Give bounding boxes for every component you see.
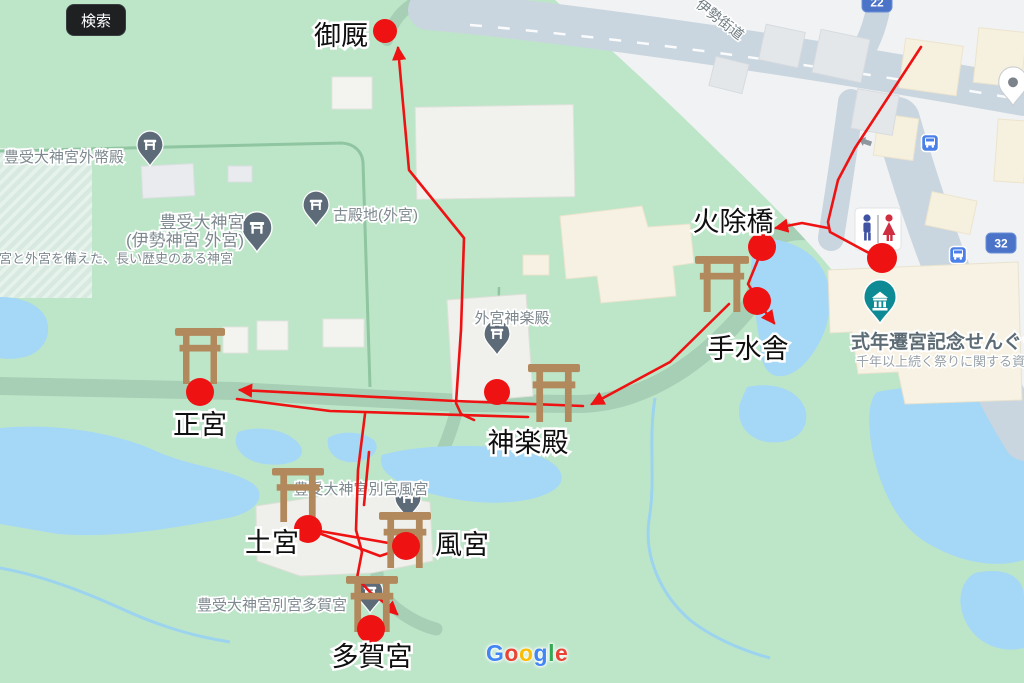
search-button-label: 検索	[81, 10, 111, 31]
poi-label: 豊受大神宮外幣殿	[4, 149, 124, 166]
google-logo-letter: o	[504, 640, 519, 666]
hatched-area	[0, 148, 92, 298]
google-logo-letter: g	[534, 640, 549, 666]
poi-label: 内宮と外宮を備えた、長い歴史のある神宮	[0, 251, 233, 266]
kazenomiya-dot	[392, 532, 420, 560]
route-shield: 22	[862, 0, 892, 12]
poi-label: (伊勢神宮 外宮)	[126, 231, 244, 250]
annotation-label: 御厩	[314, 21, 368, 51]
annotation-label: 神楽殿	[488, 428, 569, 458]
svg-text:22: 22	[870, 0, 884, 10]
svg-text:32: 32	[994, 237, 1008, 251]
map-canvas[interactable]: 豊受大神宮外幣殿豊受大神宮(伊勢神宮 外宮)内宮と外宮を備えた、長い歴史のある神…	[0, 0, 1024, 683]
museum-title-label: 式年遷宮記念せんぐう館	[851, 330, 1024, 353]
hiyokebashi-dot	[748, 233, 776, 261]
route-shield: 32	[986, 233, 1016, 253]
annotation-label: 土宮	[245, 528, 299, 558]
poi-label: 豊受大神宮	[160, 213, 245, 232]
shogu-dot	[186, 378, 214, 406]
map-svg: 豊受大神宮外幣殿豊受大神宮(伊勢神宮 外宮)内宮と外宮を備えた、長い歴史のある神…	[0, 0, 1024, 683]
google-logo-letter: e	[555, 640, 568, 666]
poi-label: 古殿地(外宮)	[333, 207, 418, 224]
bus-stop-icon[interactable]	[950, 247, 967, 264]
google-logo-letter: G	[486, 640, 504, 666]
bus-stop-icon[interactable]	[922, 135, 939, 152]
takanomiya-dot	[357, 615, 385, 643]
annotation-label: 火除橋	[693, 207, 774, 237]
rest-area-dot	[867, 243, 897, 273]
annotation-label: 手水舎	[708, 334, 789, 364]
miumaya-dot	[373, 19, 397, 43]
poi-label: 豊受大神宮別宮多賀宮	[197, 597, 347, 614]
google-logo-letter: o	[519, 640, 534, 666]
temizusha-dot	[743, 287, 771, 315]
kaguraden-dot	[484, 379, 510, 405]
museum-subtitle-label: 千年以上続く祭りに関する資	[856, 354, 1024, 369]
google-logo[interactable]: Google	[486, 640, 568, 667]
annotation-label: 正宮	[173, 410, 227, 440]
annotation-label: 風宮	[435, 530, 489, 560]
poi-label: 外宮神楽殿	[474, 310, 549, 327]
annotation-label: 多賀宮	[332, 642, 413, 672]
search-button[interactable]: 検索	[66, 4, 126, 36]
google-logo-letter: l	[548, 640, 555, 666]
